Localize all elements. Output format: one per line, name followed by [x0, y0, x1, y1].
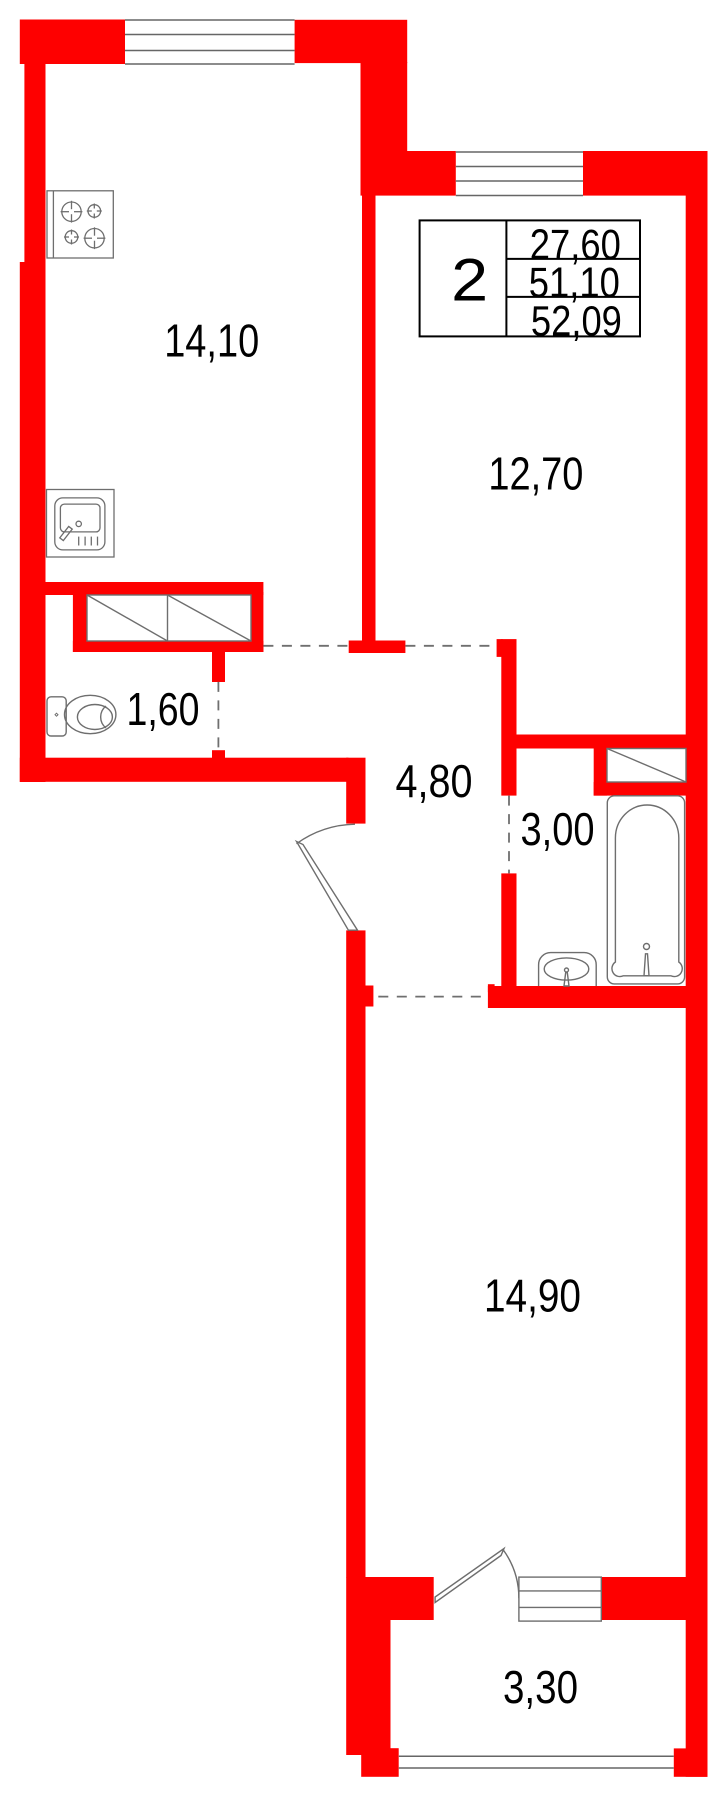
svg-text:4,80: 4,80 [396, 755, 473, 807]
svg-text:12,70: 12,70 [488, 448, 583, 500]
svg-text:3,30: 3,30 [503, 1661, 578, 1713]
svg-text:1,60: 1,60 [127, 683, 200, 735]
svg-text:14,10: 14,10 [164, 315, 259, 367]
svg-text:14,90: 14,90 [484, 1270, 581, 1322]
svg-text:2: 2 [451, 247, 488, 314]
svg-text:52,09: 52,09 [531, 299, 622, 346]
svg-text:3,00: 3,00 [521, 803, 595, 855]
